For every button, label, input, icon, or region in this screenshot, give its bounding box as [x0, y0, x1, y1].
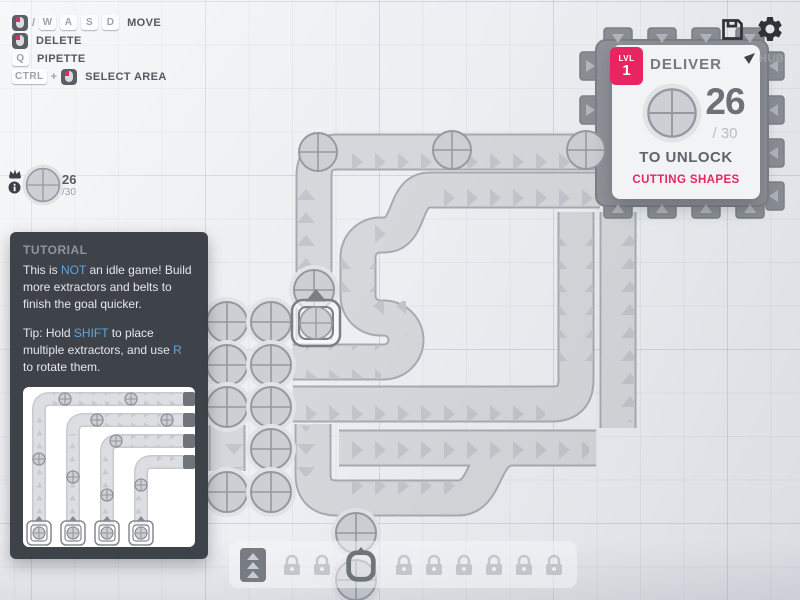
goal-amount: 26: [694, 81, 756, 123]
highlight-shift: SHIFT: [74, 326, 108, 340]
toolbar-slot-belt[interactable]: [235, 546, 271, 583]
tutorial-paragraph-1: This is NOT an idle game! Build more ext…: [23, 262, 195, 312]
pin-counter-value: 26: [62, 172, 76, 187]
gear-icon: [755, 14, 785, 44]
pin-counter-total: /30: [62, 187, 76, 198]
goal-of-total: / 30: [694, 125, 756, 142]
hub-marker-label: HUB: [759, 53, 784, 65]
highlight-not: NOT: [61, 263, 86, 277]
hotkey-row-select-area: CTRL + SELECT AREA: [12, 68, 167, 85]
hub-pointer-icon: [744, 53, 756, 65]
goal-title: DELIVER: [612, 56, 760, 73]
hotkey-label-pipette: PIPETTE: [37, 53, 86, 65]
highlight-r: R: [173, 343, 182, 357]
mouse-left-icon: [12, 15, 28, 31]
extractor-icon: [343, 545, 379, 585]
lock-icon: [483, 553, 505, 577]
hotkey-row-move: / W A S D MOVE: [12, 14, 161, 31]
tutorial-paragraph-2: Tip: Hold SHIFT to place multiple extrac…: [23, 325, 195, 375]
lock-icon: [281, 553, 303, 577]
goal-unlock-label: TO UNLOCK: [612, 149, 760, 166]
toolbar-slot-locked-8[interactable]: [536, 546, 572, 583]
plus-sign: +: [51, 71, 57, 83]
toolbar-slot-locked-2[interactable]: [304, 546, 340, 583]
building-toolbar: [229, 541, 577, 588]
hub-marker: HUB: [744, 53, 784, 65]
hotkey-row-pipette: Q PIPETTE: [12, 50, 86, 67]
keycap-w: W: [39, 15, 56, 30]
settings-button[interactable]: [755, 14, 785, 44]
belt-icon: [239, 547, 267, 583]
toolbar-slot-extractor-selected[interactable]: [343, 546, 379, 583]
keycap-a: A: [60, 15, 77, 30]
hotkey-label-select-area: SELECT AREA: [85, 71, 167, 83]
goal-shape-icon: [20, 162, 66, 208]
lock-icon: [543, 553, 565, 577]
keycap-s: S: [81, 15, 98, 30]
tutorial-panel: TUTORIAL This is NOT an idle game! Build…: [10, 232, 208, 559]
lock-icon: [513, 553, 535, 577]
tutorial-illustration: [23, 387, 195, 547]
hub-edge-slots: [183, 392, 195, 469]
goal-reward: CUTTING SHAPES: [612, 174, 760, 186]
pinned-goal-counter: 26 /30: [6, 162, 116, 210]
hotkey-row-delete: DELETE: [12, 32, 82, 49]
lock-icon: [423, 553, 445, 577]
game-screen: / W A S D MOVE DELETE Q PIPETTE CTRL + S…: [0, 0, 800, 600]
save-button[interactable]: [719, 16, 746, 43]
lock-icon: [311, 553, 333, 577]
lock-icon: [393, 553, 415, 577]
save-icon: [719, 16, 746, 43]
lock-icon: [453, 553, 475, 577]
hotkey-label-delete: DELETE: [36, 35, 82, 47]
keycap-ctrl: CTRL: [12, 69, 47, 84]
separator: /: [32, 17, 35, 29]
keycap-q: Q: [12, 51, 29, 66]
illustration-extractors: [27, 516, 153, 545]
mouse-right-icon: [12, 33, 28, 49]
tutorial-header: TUTORIAL: [23, 243, 195, 257]
hotkey-label-move: MOVE: [127, 17, 161, 29]
mouse-left-icon: [61, 69, 77, 85]
keycap-d: D: [102, 15, 119, 30]
goal-panel[interactable]: LVL 1 DELIVER 26 / 30 TO UNLOCK CUTTING …: [612, 45, 760, 199]
